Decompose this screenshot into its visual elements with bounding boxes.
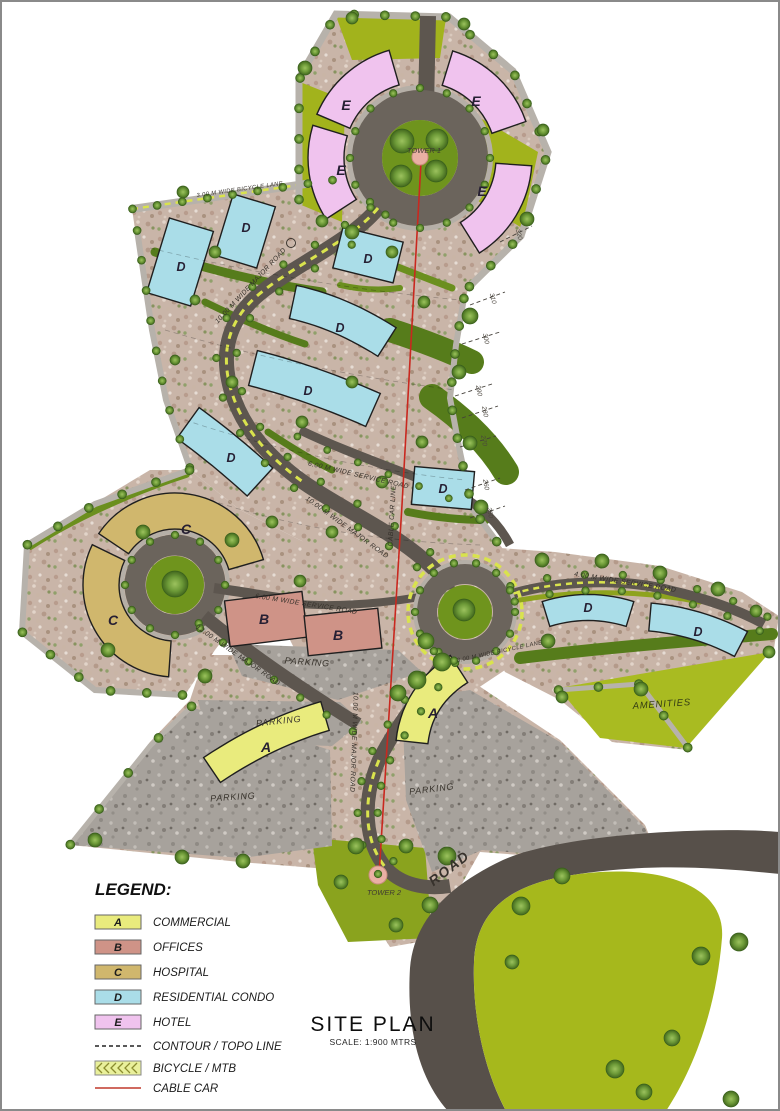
contour-label: 300 — [481, 333, 490, 345]
zone-letter-offices: B — [333, 627, 343, 643]
legend-label: COMMERCIAL — [153, 917, 231, 929]
legend-label: HOSPITAL — [153, 967, 209, 979]
legend-label: BICYCLE / MTB — [153, 1063, 236, 1075]
contour-label: 280 — [480, 405, 489, 418]
zone-letter-residential: D — [241, 221, 250, 235]
legend-label: OFFICES — [153, 942, 203, 954]
zone-letter-hotel: E — [471, 93, 481, 109]
zone-letter-commercial: A — [427, 705, 438, 721]
zone-letter-hotel: E — [477, 183, 487, 199]
legend-letter: C — [114, 967, 123, 979]
page-title: SITE PLAN — [310, 1013, 435, 1036]
zone-letter-residential: D — [363, 252, 372, 266]
contour-label: 260 — [481, 478, 490, 491]
legend-heading: LEGEND: — [95, 880, 172, 899]
legend-label: RESIDENTIAL CONDO — [153, 992, 274, 1004]
contour-tick — [455, 384, 492, 396]
legend-label: HOTEL — [153, 1017, 191, 1029]
tower2-label: TOWER 2 — [367, 888, 402, 897]
zone-letter-commercial: A — [260, 739, 271, 755]
perimeter-green — [474, 871, 722, 1111]
zone-letter-residential: D — [693, 625, 702, 639]
contour-tick — [470, 292, 505, 305]
zone-letter-offices: B — [259, 611, 269, 627]
site-plan-page: E E E E C C B B A A D D D D D D D D D 10… — [0, 0, 780, 1111]
site-plan-drawing: E E E E C C B B A A D D D D D D D D D 10… — [0, 0, 780, 1111]
legend: LEGEND: A COMMERCIAL B OFFICES C HOSPITA… — [95, 880, 282, 1095]
zone-letter-hospital: C — [108, 612, 119, 628]
zone-letter-residential: D — [176, 260, 185, 274]
legend-label: CABLE CAR — [153, 1083, 218, 1095]
legend-letter: D — [114, 992, 122, 1004]
legend-label: CONTOUR / TOPO LINE — [153, 1041, 282, 1053]
zone-letter-hospital: C — [181, 521, 192, 537]
zone-letter-residential: D — [303, 384, 312, 398]
zone-letter-residential: D — [583, 601, 592, 615]
legend-letter: B — [114, 942, 122, 954]
zone-letter-residential: D — [226, 451, 235, 465]
tower1-label: TOWER 1 — [407, 146, 441, 155]
legend-letter: E — [114, 1017, 122, 1029]
contour-label: 310 — [488, 292, 498, 305]
legend-letter: A — [113, 917, 122, 929]
zone-letter-hotel: E — [336, 162, 346, 178]
zone-letter-residential: D — [438, 482, 447, 496]
zone-letter-residential: D — [335, 321, 344, 335]
page-scale: SCALE: 1:900 MTRS — [329, 1037, 416, 1047]
zone-letter-hotel: E — [341, 97, 351, 113]
contour-label: 290 — [474, 384, 483, 397]
